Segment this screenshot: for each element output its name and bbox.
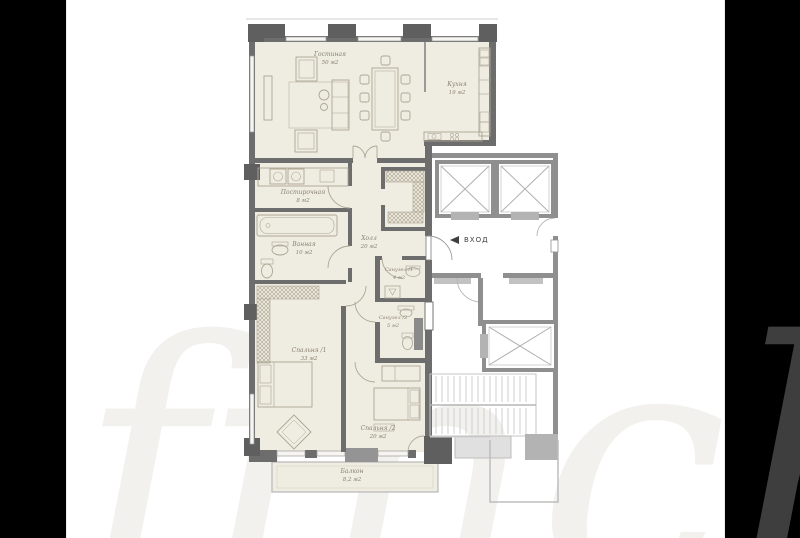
elevator-shaft <box>497 162 553 220</box>
floor-plan-drawing <box>0 0 800 538</box>
watermark-text-dark: finch <box>724 270 800 538</box>
wall-block <box>525 434 558 460</box>
letterbox-bar-left <box>0 0 67 538</box>
stair-landing <box>455 436 511 458</box>
entrance-door <box>426 236 452 260</box>
balcony-slab <box>272 462 438 492</box>
elevator-shaft <box>437 162 493 220</box>
shower-duct <box>414 318 423 350</box>
wall-niche <box>425 302 433 330</box>
letterbox-bar-right: finch <box>724 0 800 538</box>
floor-plan-page: finch <box>0 0 800 538</box>
elevator-shaft <box>480 322 556 370</box>
staircase <box>430 374 536 436</box>
